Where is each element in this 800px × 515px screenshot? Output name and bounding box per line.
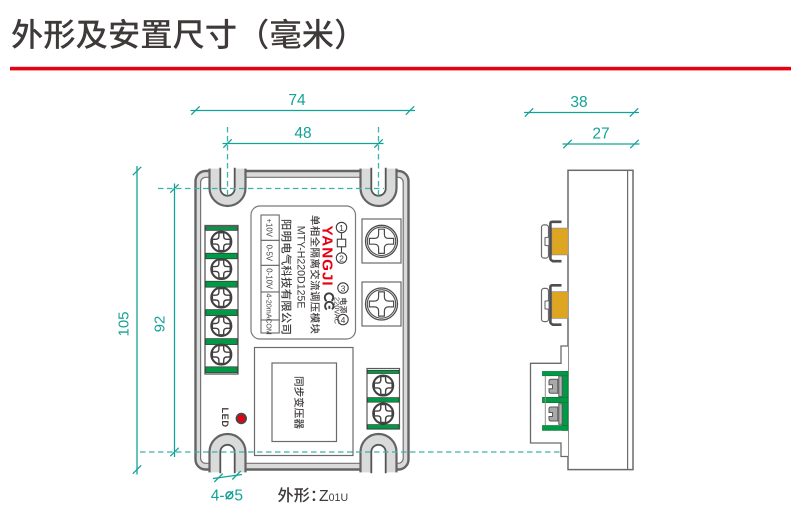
svg-text:4-: 4-: [211, 488, 225, 505]
svg-text:2: 2: [339, 254, 344, 264]
svg-text:MTY-H220D125E: MTY-H220D125E: [295, 226, 307, 309]
svg-text:38: 38: [570, 94, 587, 111]
svg-text:4-20mA: 4-20mA: [265, 293, 274, 318]
svg-text:92: 92: [152, 316, 169, 333]
svg-text:48: 48: [294, 125, 311, 142]
svg-text:1: 1: [339, 223, 344, 233]
svg-text:LED: LED: [220, 408, 230, 428]
svg-text:74: 74: [288, 92, 306, 109]
svg-text:220VAC: 220VAC: [332, 297, 341, 325]
svg-text:COM: COM: [265, 318, 272, 335]
svg-text:+10V: +10V: [265, 218, 274, 237]
svg-text:0-10V: 0-10V: [265, 268, 274, 290]
svg-text:Z01U: Z01U: [319, 488, 348, 505]
svg-text:105: 105: [116, 311, 133, 336]
svg-text:YANGJI: YANGJI: [318, 226, 335, 287]
svg-text:27: 27: [592, 126, 609, 143]
svg-text:5: 5: [234, 488, 243, 505]
svg-text:0-5V: 0-5V: [265, 245, 274, 262]
svg-text:3: 3: [341, 284, 346, 294]
